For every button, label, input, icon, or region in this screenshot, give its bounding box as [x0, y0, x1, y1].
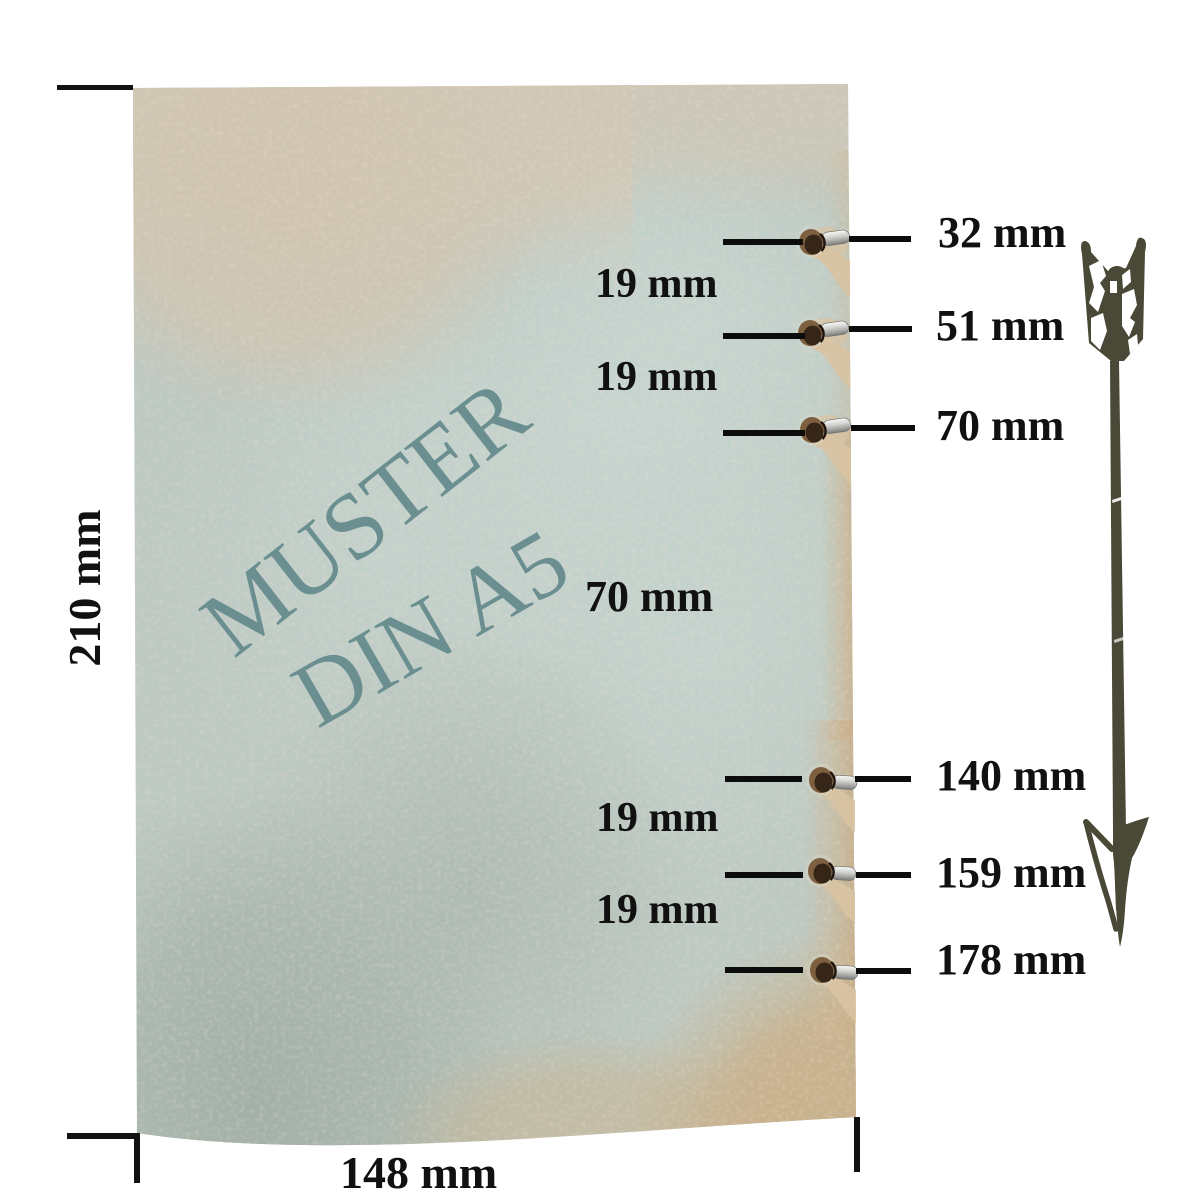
svg-text:32 mm: 32 mm [938, 208, 1066, 257]
svg-text:148 mm: 148 mm [340, 1147, 497, 1198]
svg-text:51 mm: 51 mm [936, 301, 1064, 350]
svg-text:70 mm: 70 mm [585, 572, 713, 621]
svg-text:70 mm: 70 mm [936, 401, 1064, 450]
svg-text:210 mm: 210 mm [59, 509, 110, 666]
svg-text:19 mm: 19 mm [596, 887, 718, 933]
svg-text:178 mm: 178 mm [936, 935, 1086, 984]
svg-text:19 mm: 19 mm [596, 795, 718, 841]
svg-text:19 mm: 19 mm [595, 354, 717, 400]
svg-text:159 mm: 159 mm [936, 848, 1086, 897]
svg-text:140 mm: 140 mm [936, 751, 1086, 800]
svg-text:19 mm: 19 mm [595, 261, 717, 307]
